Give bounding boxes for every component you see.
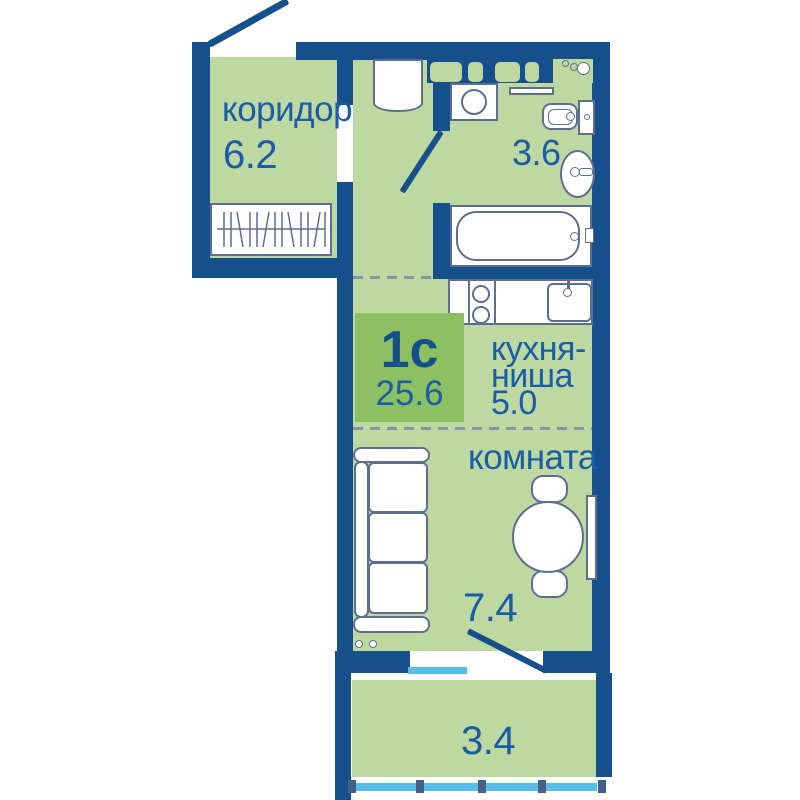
glazing-post (478, 780, 486, 793)
kitchen-room-divider (353, 427, 593, 430)
room-window (586, 495, 597, 580)
corridor-label: коридор (222, 92, 352, 127)
entry-door-swing (207, 0, 289, 48)
glazing-post (538, 780, 546, 793)
sink-faucet-icon (579, 168, 593, 176)
toilet-seat-dot (566, 112, 575, 121)
kitchen-label: кухня- ниша 5.0 (491, 336, 586, 417)
vent-hole-icon (577, 62, 590, 75)
vent-notch (495, 62, 520, 82)
sofa-cushion (368, 562, 428, 614)
bathtub-drain-icon (570, 232, 579, 241)
floor-dot (369, 640, 377, 648)
toilet-tank-button (584, 114, 590, 120)
washing-machine-drum-icon (461, 89, 487, 115)
balcony-glazing (351, 783, 597, 791)
stove-burner-icon (472, 306, 490, 324)
room-label: комната (468, 440, 597, 475)
dining-table (512, 501, 584, 573)
counter-divider (468, 281, 470, 323)
sofa-cushion (368, 512, 428, 563)
corridor-area: 6.2 (223, 135, 277, 175)
vent-hole-icon (562, 60, 569, 67)
wall-corridor-left (192, 42, 210, 278)
glazing-post (416, 780, 424, 793)
floor-dot (355, 640, 363, 648)
bathroom-area: 3.6 (512, 135, 561, 171)
bathtub-inner (456, 211, 580, 261)
wardrobe (210, 203, 332, 256)
apartment-type: 1с (381, 325, 439, 375)
wall-balcony-right (596, 673, 612, 777)
apartment-total-area: 25.6 (375, 375, 443, 413)
stove-burner-icon (472, 285, 490, 303)
wall-main-left (337, 182, 353, 673)
wardrobe-hangers-icon (212, 205, 330, 254)
vent-notch (430, 62, 462, 82)
vent-notch (525, 62, 539, 82)
counter-divider (494, 281, 496, 323)
bathroom-shelf (509, 87, 554, 95)
glazing-post (598, 780, 606, 793)
sofa-armrest (353, 616, 430, 633)
balcony-door-sill (408, 667, 467, 674)
wall-bathroom-bottom (433, 267, 593, 279)
wall-corridor-bottom (192, 258, 353, 278)
balcony-area: 3.4 (461, 721, 515, 761)
chair (531, 570, 568, 598)
sofa-backrest (354, 461, 369, 618)
room-area: 7.4 (463, 588, 517, 628)
glazing-post (348, 780, 356, 793)
fridge (373, 59, 423, 112)
floor-plan: 1с 25.6 коридор 6.2 3.6 кухня- ниша 5.0 … (0, 0, 800, 800)
wall-room-bottom-right (543, 651, 610, 673)
chair (531, 475, 568, 503)
vent-notch (468, 62, 483, 82)
bathtub-faucet-icon (585, 228, 594, 243)
sofa-cushion (368, 462, 428, 513)
wall-room-bottom-left (335, 651, 410, 673)
apartment-badge: 1с 25.6 (355, 313, 464, 422)
kitchen-faucet-knob (563, 288, 572, 297)
